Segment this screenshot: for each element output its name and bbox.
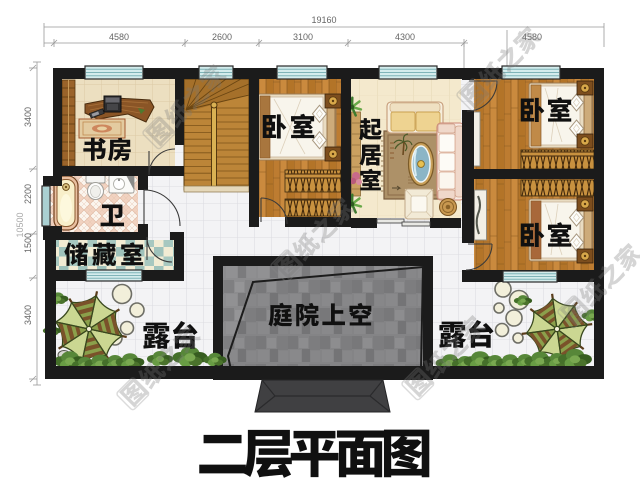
svg-text:2200: 2200 [23, 184, 33, 204]
svg-text:3400: 3400 [23, 305, 33, 325]
svg-text:3400: 3400 [23, 107, 33, 127]
svg-text:4580: 4580 [109, 32, 129, 42]
svg-text:19160: 19160 [311, 15, 336, 25]
svg-text:2600: 2600 [212, 32, 232, 42]
svg-text:4300: 4300 [395, 32, 415, 42]
svg-text:3100: 3100 [293, 32, 313, 42]
svg-text:10500: 10500 [15, 212, 25, 237]
